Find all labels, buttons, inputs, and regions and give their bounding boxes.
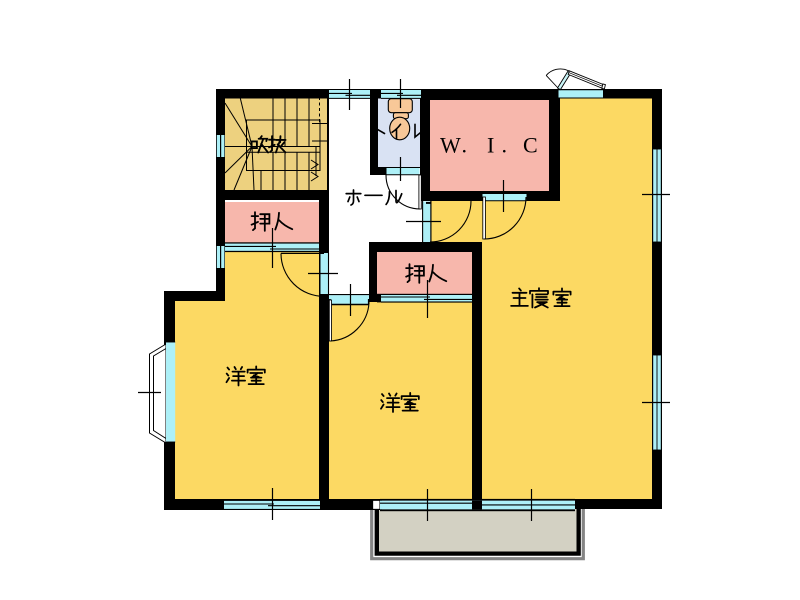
svg-text:.: .: [462, 133, 468, 158]
svg-text:W: W: [440, 133, 461, 158]
svg-text:I: I: [487, 133, 494, 158]
svg-text:C: C: [523, 133, 538, 158]
svg-text:.: .: [502, 133, 508, 158]
